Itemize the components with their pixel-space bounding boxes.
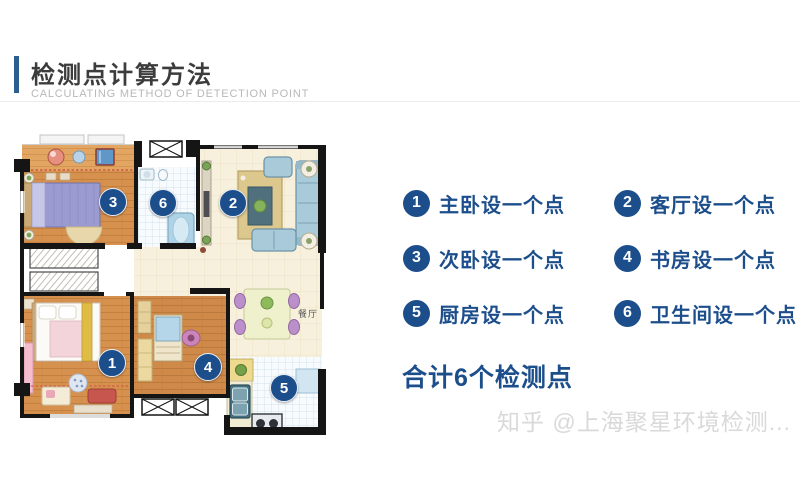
legend-item-master-bedroom: 1 主卧设一个点 xyxy=(403,189,614,217)
page-title: 检测点计算方法 xyxy=(31,55,213,90)
marker-number: 1 xyxy=(108,355,116,372)
legend-item-second-bedroom: 3 次卧设一个点 xyxy=(403,244,614,272)
watermark: 知乎 @上海聚星环境检测... xyxy=(497,403,791,437)
legend-number-badge: 2 xyxy=(614,190,641,217)
legend-item-label: 书房设一个点 xyxy=(650,244,776,273)
legend-item-living-room: 2 客厅设一个点 xyxy=(614,189,797,217)
marker-number: 3 xyxy=(109,194,117,211)
legend-number-badge: 3 xyxy=(403,245,430,272)
header-divider xyxy=(0,101,800,102)
marker-number: 6 xyxy=(159,195,167,212)
marker-number: 2 xyxy=(229,195,237,212)
detection-point-marker-1: 1 xyxy=(98,349,126,377)
detection-point-marker-5: 5 xyxy=(270,374,298,402)
legend-item-label: 客厅设一个点 xyxy=(650,189,776,218)
legend-item-label: 主卧设一个点 xyxy=(439,189,565,218)
legend-item-bathroom: 6 卫生间设一个点 xyxy=(614,299,797,327)
legend-number-badge: 5 xyxy=(403,300,430,327)
detection-point-marker-4: 4 xyxy=(194,353,222,381)
legend-item-label: 次卧设一个点 xyxy=(439,244,565,273)
page-subtitle: CALCULATING METHOD OF DETECTION POINT xyxy=(31,88,309,100)
legend-item-label: 卫生间设一个点 xyxy=(650,299,797,328)
detection-point-marker-6: 6 xyxy=(149,189,177,217)
wardrobe-shelves xyxy=(30,248,98,291)
legend-number-badge: 4 xyxy=(614,245,641,272)
legend-number-badge: 6 xyxy=(614,300,641,327)
detection-point-marker-3: 3 xyxy=(99,188,127,216)
title-accent-bar xyxy=(14,56,19,93)
detection-point-marker-2: 2 xyxy=(219,189,247,217)
total-detection-points: 合计6个检测点 xyxy=(402,358,573,394)
legend-number-badge: 1 xyxy=(403,190,430,217)
legend-item-study: 4 书房设一个点 xyxy=(614,244,797,272)
dining-furniture xyxy=(235,289,300,339)
legend: 1 主卧设一个点 2 客厅设一个点 3 次卧设一个点 4 书房设一个点 5 厨房… xyxy=(403,189,797,327)
legend-item-kitchen: 5 厨房设一个点 xyxy=(403,299,614,327)
marker-number: 4 xyxy=(204,359,212,376)
floor-plan: 1 2 3 4 5 6 餐厅 xyxy=(12,131,332,447)
dining-room-label: 餐厅 xyxy=(298,307,318,320)
marker-number: 5 xyxy=(280,380,288,397)
legend-item-label: 厨房设一个点 xyxy=(439,299,565,328)
